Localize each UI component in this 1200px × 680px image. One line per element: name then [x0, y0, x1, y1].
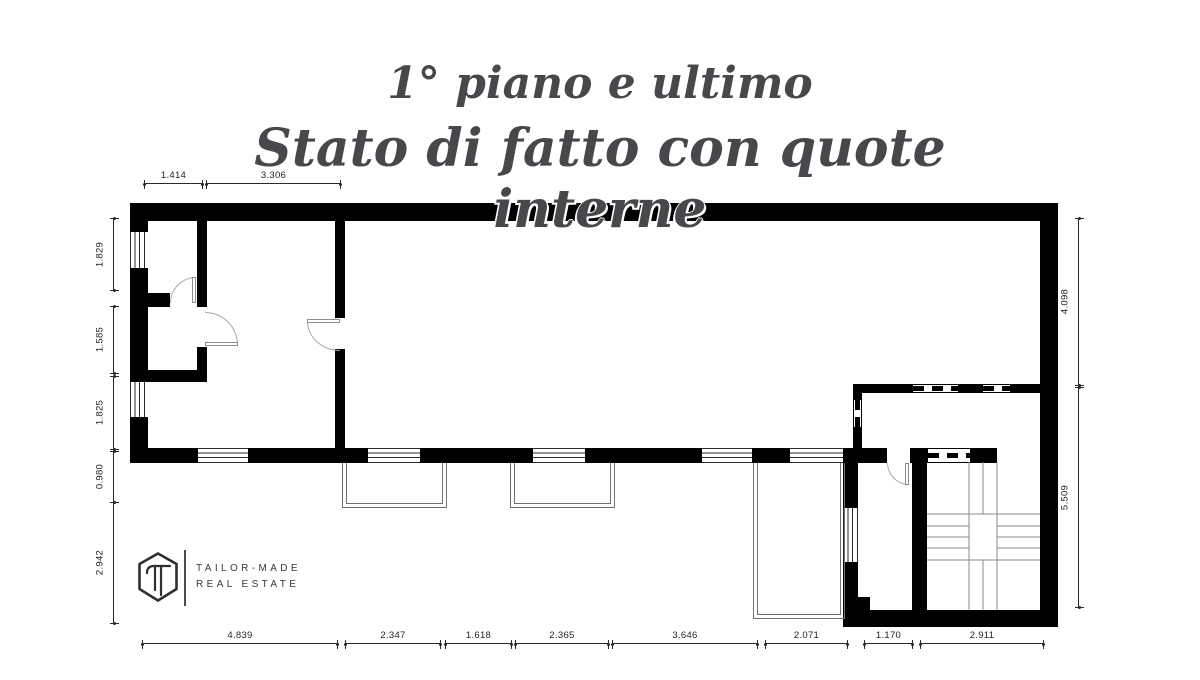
tailor-made-logo-icon — [138, 552, 178, 602]
logo-text-line2: REAL ESTATE — [196, 579, 299, 590]
door-arc-livingroom — [307, 321, 340, 351]
dim-right-1: 5.509 — [1078, 388, 1079, 607]
door-leaf-roomB — [205, 342, 238, 346]
window-left-2 — [130, 382, 148, 417]
window-bottom-2 — [368, 448, 420, 463]
plan-title-line1: 1° piano e ultimo — [150, 58, 1050, 109]
dim-left-4: 2.942 — [113, 503, 114, 623]
window-left-1 — [130, 232, 148, 268]
dim-left-2: 1.825 — [113, 377, 114, 449]
wall-roomB-bottom — [130, 370, 207, 382]
dim-right-0: 4.098 — [1078, 219, 1079, 385]
dashed-window-terrace-1 — [913, 384, 958, 393]
window-bottom-3 — [533, 448, 585, 463]
wall-right — [1040, 203, 1058, 627]
dim-bottom-4: 3.646 — [613, 643, 757, 644]
door-leaf-right-room — [905, 463, 909, 485]
dim-left-3: 0.980 — [113, 452, 114, 502]
logo-text-line1: TAILOR-MADE — [196, 563, 301, 574]
wall-stub-roomA — [130, 293, 170, 307]
dim-left-1: 1.585 — [113, 307, 114, 373]
door-opening-right-room — [887, 448, 910, 463]
dim-bottom-1: 2.347 — [346, 643, 440, 644]
dim-bottom-0: 4.839 — [143, 643, 337, 644]
dim-bottom-3: 2.365 — [516, 643, 608, 644]
floor-plan-page: 1° piano e ultimo Stato di fatto con quo… — [0, 0, 1200, 680]
dim-bottom-6: 1.170 — [865, 643, 912, 644]
dim-bottom-5: 2.071 — [766, 643, 847, 644]
dashed-window-terrace-2 — [983, 384, 1010, 393]
wall-stairwell-left — [912, 449, 927, 610]
balcony-1 — [342, 463, 447, 508]
dim-left-0: 1.829 — [113, 219, 114, 290]
plan-title-line2: Stato di fatto con quote interne — [150, 118, 1050, 240]
balcony-2 — [510, 463, 615, 508]
door-leaf-livingroom — [307, 319, 340, 323]
dim-bottom-7: 2.911 — [921, 643, 1043, 644]
window-bottom-4 — [702, 448, 752, 463]
wall-bottom-right-section — [843, 610, 1058, 627]
window-bottom-5 — [790, 448, 843, 463]
logo-divider — [184, 550, 186, 606]
window-bottom-1 — [198, 448, 248, 463]
door-leaf-roomA — [192, 277, 196, 303]
staircase — [927, 462, 1040, 610]
balcony-3 — [753, 463, 845, 619]
dashed-window-terrace-stub — [853, 400, 862, 427]
wall-notch — [858, 597, 870, 611]
window-balcony-room — [843, 508, 858, 562]
door-arc-roomB — [205, 312, 238, 345]
dashed-window-stairwell — [928, 448, 970, 463]
wall-livingroom-left-lower — [335, 349, 345, 448]
dim-bottom-2: 1.618 — [446, 643, 511, 644]
